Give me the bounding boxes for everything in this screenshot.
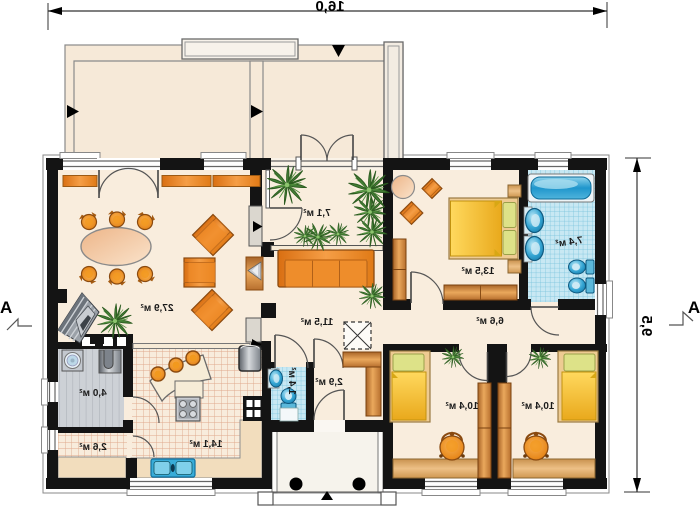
svg-text:4,0 м²: 4,0 м² bbox=[79, 388, 107, 399]
svg-text:10,4 м²: 10,4 м² bbox=[445, 401, 479, 412]
svg-text:A: A bbox=[688, 298, 700, 317]
svg-text:14,1 м²: 14,1 м² bbox=[189, 439, 223, 450]
svg-text:2,6 м²: 2,6 м² bbox=[79, 442, 107, 453]
svg-text:2,9 м²: 2,9 м² bbox=[315, 377, 343, 388]
svg-text:9,5: 9,5 bbox=[638, 316, 655, 337]
svg-text:10,4 м²: 10,4 м² bbox=[521, 401, 555, 412]
svg-text:7,1 м²: 7,1 м² bbox=[303, 208, 331, 219]
svg-text:16,0: 16,0 bbox=[315, 0, 344, 15]
svg-text:A: A bbox=[0, 298, 12, 317]
svg-text:11,5 м²: 11,5 м² bbox=[300, 317, 333, 328]
svg-text:6,6 м²: 6,6 м² bbox=[476, 316, 504, 327]
svg-text:13,5 м²: 13,5 м² bbox=[461, 266, 495, 277]
svg-text:1,4 м²: 1,4 м² bbox=[286, 367, 297, 395]
svg-text:27,9 м²: 27,9 м² bbox=[140, 303, 174, 314]
